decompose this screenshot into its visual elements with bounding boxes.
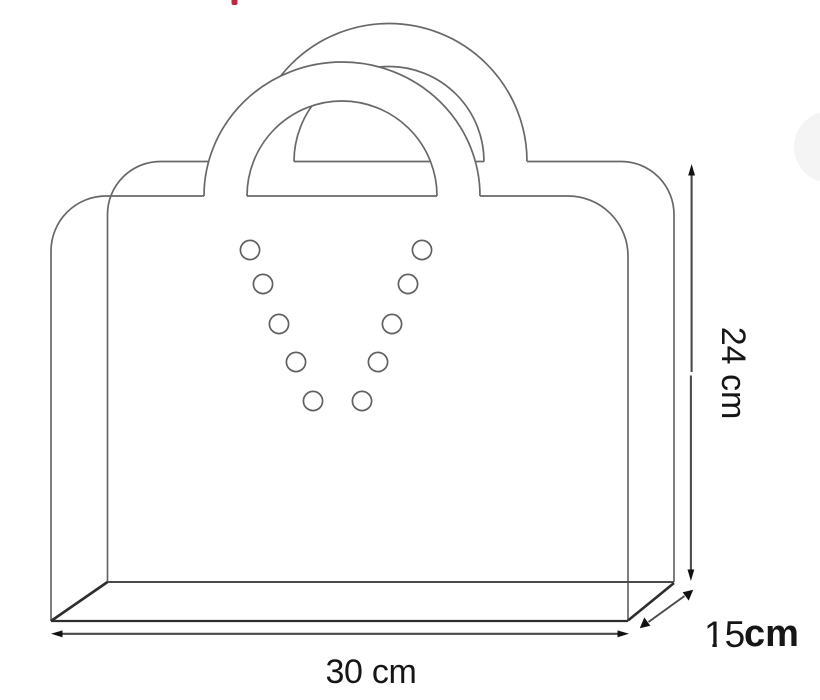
svg-text:24 cm: 24 cm (714, 327, 752, 420)
svg-text:15: 15 (704, 614, 745, 655)
svg-text:30 cm: 30 cm (325, 653, 416, 691)
svg-text:cm: cm (744, 613, 799, 655)
